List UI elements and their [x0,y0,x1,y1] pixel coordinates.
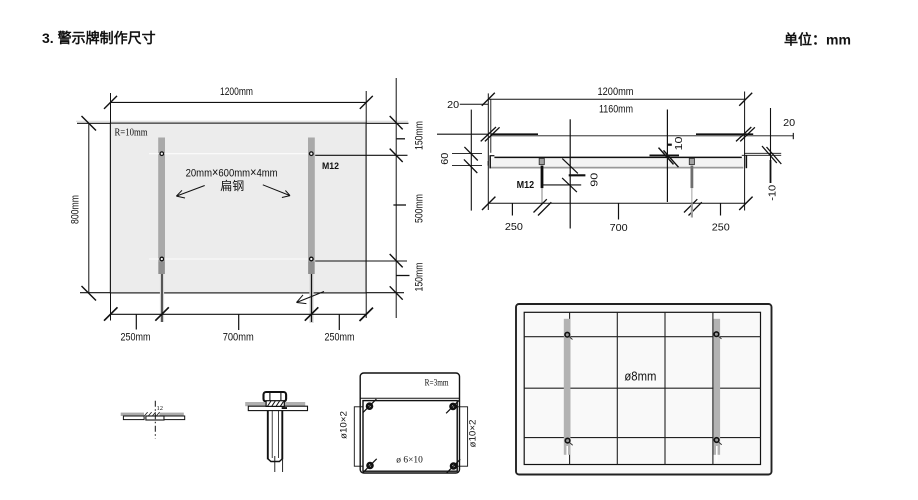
svg-text:800mm: 800mm [70,195,82,224]
svg-text:250mm: 250mm [325,332,355,344]
svg-text:扁钢: 扁钢 [220,179,244,193]
svg-text:12: 12 [157,405,164,412]
svg-text:1200mm: 1200mm [220,86,253,98]
svg-text:ø 6×10: ø 6×10 [396,456,423,466]
svg-text:250: 250 [505,221,523,233]
svg-text:ø10×2: ø10×2 [468,420,478,448]
svg-text:90: 90 [589,173,601,187]
svg-text:-10: -10 [767,185,779,201]
svg-text:ø10×2: ø10×2 [339,411,349,439]
svg-text:R=3mm: R=3mm [425,379,449,389]
svg-text:1200mm: 1200mm [598,86,634,98]
svg-text:10: 10 [673,136,685,150]
svg-text:R=10mm: R=10mm [115,128,148,139]
svg-text:60: 60 [439,153,451,165]
svg-text:250: 250 [712,222,730,234]
svg-text:150mm: 150mm [414,263,426,292]
svg-text:20: 20 [447,99,459,111]
svg-text:150mm: 150mm [414,121,426,150]
svg-text:20: 20 [783,117,795,129]
svg-text:700mm: 700mm [223,332,254,344]
svg-text:500mm: 500mm [414,194,426,223]
svg-text:单位：mm: 单位：mm [784,32,851,48]
svg-text:M12: M12 [322,161,339,171]
svg-text:20mm×600mm×4mm: 20mm×600mm×4mm [186,166,278,180]
svg-text:ø8mm: ø8mm [624,369,656,384]
svg-text:3. 警示牌制作尺寸: 3. 警示牌制作尺寸 [42,30,156,46]
svg-text:1160mm: 1160mm [599,104,633,116]
svg-text:700: 700 [610,222,628,234]
svg-text:M12: M12 [517,180,535,191]
svg-text:250mm: 250mm [121,332,151,344]
